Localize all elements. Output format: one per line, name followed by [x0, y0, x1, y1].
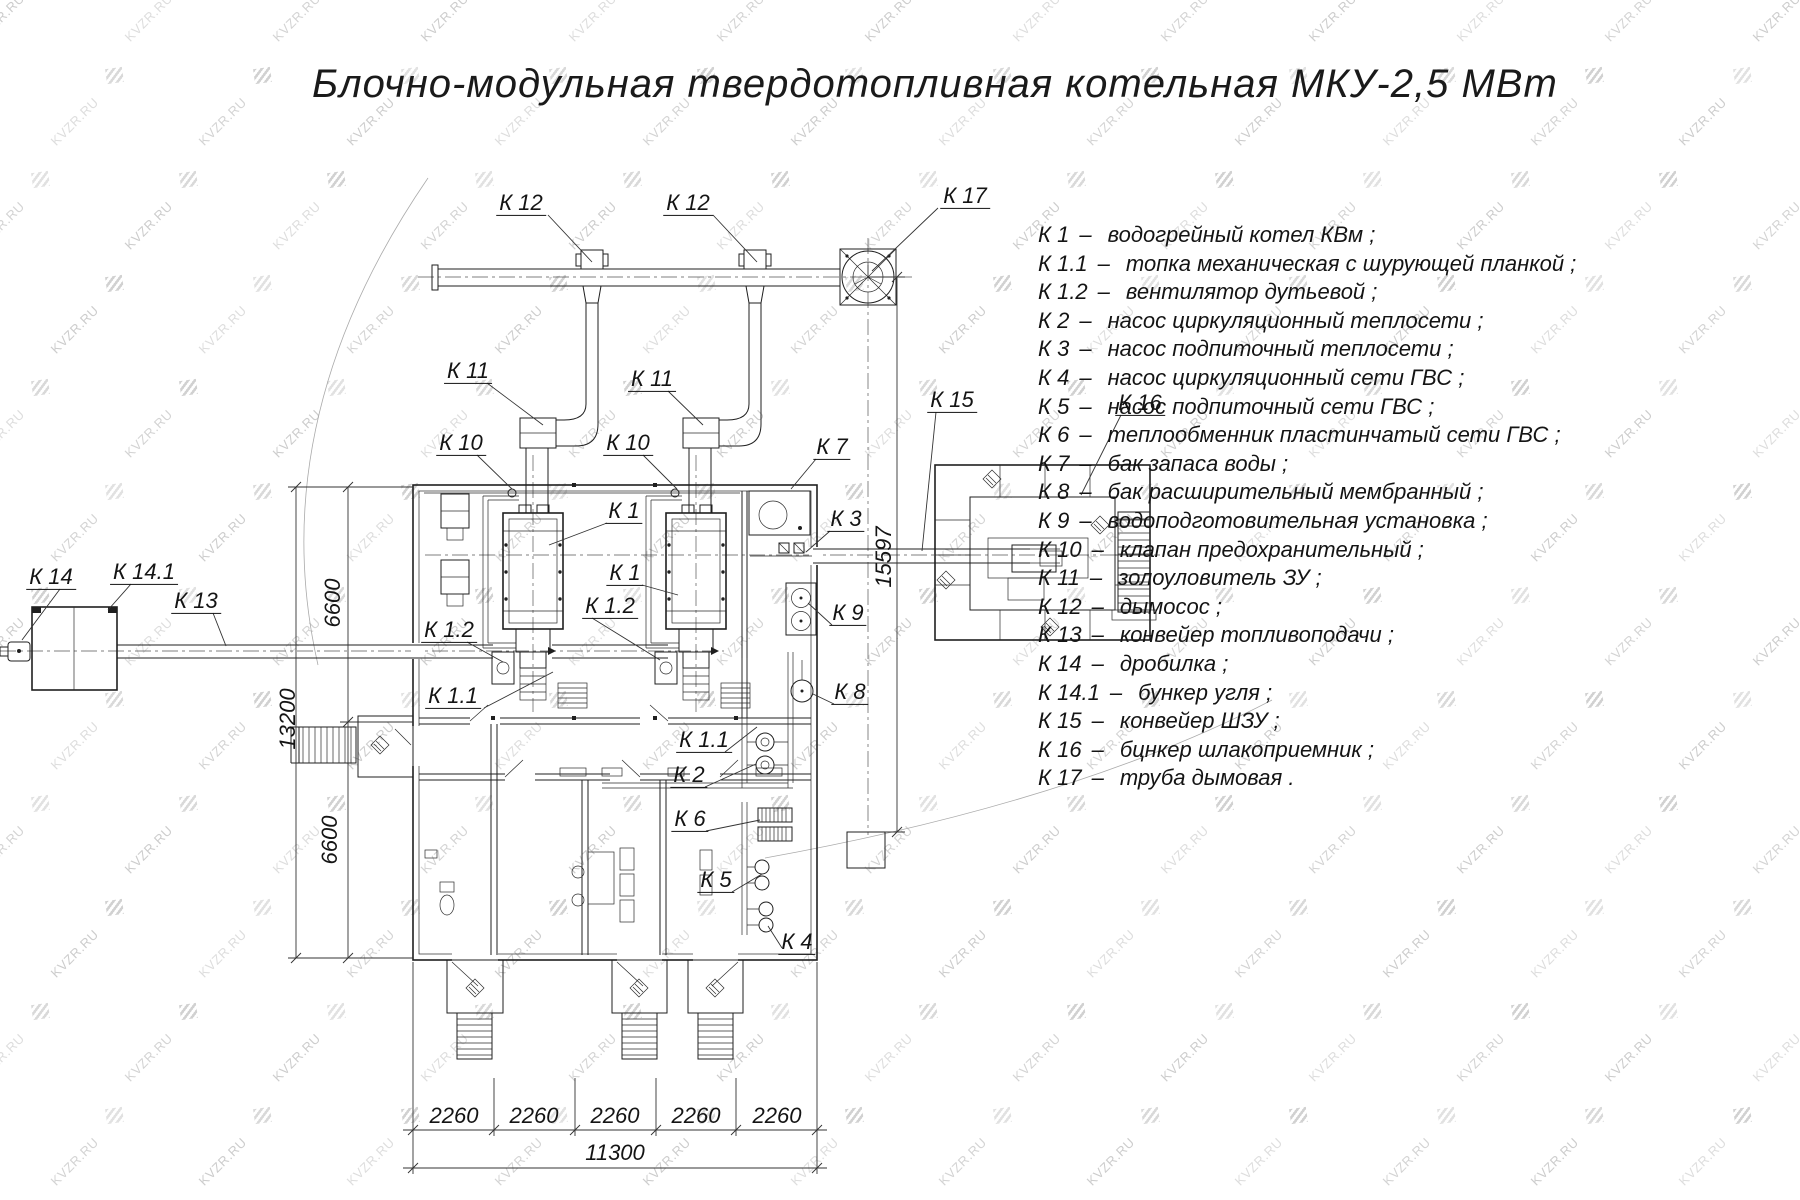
legend-item: К 5–насос подпиточный сети ГВС ; — [1038, 393, 1576, 422]
callout-leaders — [22, 208, 1121, 948]
legend-item-label: дробилка ; — [1120, 650, 1229, 679]
legend-item-label: бак запаса воды ; — [1108, 450, 1289, 479]
callout-label: К 2 — [670, 763, 707, 788]
legend-item-dash: – — [1110, 679, 1122, 708]
callout-label: К 12 — [663, 191, 713, 216]
legend-item-code: К 7 — [1038, 450, 1069, 479]
legend-item-dash: – — [1079, 393, 1091, 422]
legend-item-label: насос циркуляционный сети ГВС ; — [1108, 364, 1465, 393]
dimension-text: 2260 — [672, 1103, 721, 1129]
boiler-k1-left — [483, 496, 587, 708]
legend-item-dash: – — [1098, 278, 1110, 307]
legend-item: К 17–труба дымовая . — [1038, 764, 1576, 793]
dimension-text: 2260 — [591, 1103, 640, 1129]
dimension-text: 2260 — [430, 1103, 479, 1129]
legend-item-code: К 4 — [1038, 364, 1069, 393]
callout-label: К 1.1 — [425, 684, 481, 709]
callout-label: К 7 — [813, 435, 850, 460]
callout-label: К 12 — [496, 191, 546, 216]
left-wall-units — [441, 494, 469, 606]
legend-item: К 11–золоуловитель ЗУ ; — [1038, 564, 1576, 593]
legend-item-code: К 14.1 — [1038, 679, 1100, 708]
legend-item-dash: – — [1079, 335, 1091, 364]
legend-item-label: водоподготовительная установка ; — [1108, 507, 1488, 536]
legend-item-dash: – — [1098, 250, 1110, 279]
legend-item-label: бак расширительный мембранный ; — [1108, 478, 1484, 507]
legend-item-label: конвейер ШЗУ ; — [1120, 707, 1280, 736]
legend: К 1–водогрейный котел КВм ;К 1.1–топка м… — [1038, 221, 1576, 793]
legend-item-label: теплообменник пластинчатый сети ГВС ; — [1108, 421, 1561, 450]
dimension-text: 15597 — [871, 526, 897, 587]
callout-label: К 10 — [603, 431, 653, 456]
boiler-k1-right — [646, 496, 750, 708]
legend-item: К 7–бак запаса воды ; — [1038, 450, 1576, 479]
legend-item-code: К 12 — [1038, 593, 1082, 622]
legend-item: К 16–бцнкер шлакоприемник ; — [1038, 736, 1576, 765]
legend-item-label: золоуловитель ЗУ ; — [1118, 564, 1321, 593]
legend-item-dash: – — [1092, 593, 1104, 622]
legend-item-code: К 13 — [1038, 621, 1082, 650]
callout-label: К 11 — [628, 367, 676, 392]
legend-item: К 14–дробилка ; — [1038, 650, 1576, 679]
left-annex-stairs — [291, 716, 413, 777]
legend-item-label: вентилятор дутьевой ; — [1126, 278, 1377, 307]
legend-item-code: К 10 — [1038, 536, 1082, 565]
legend-item-dash: – — [1090, 564, 1102, 593]
legend-item-label: дымосос ; — [1120, 593, 1222, 622]
callout-label: К 1 — [605, 499, 642, 524]
legend-item-code: К 5 — [1038, 393, 1069, 422]
legend-item-code: К 11 — [1038, 564, 1080, 593]
legend-item-dash: – — [1092, 536, 1104, 565]
legend-item: К 3–насос подпиточный теплосети ; — [1038, 335, 1576, 364]
legend-item-label: клапан предохранительный ; — [1120, 536, 1424, 565]
legend-item-label: насос подпиточный сети ГВС ; — [1108, 393, 1435, 422]
legend-item: К 6–теплообменник пластинчатый сети ГВС … — [1038, 421, 1576, 450]
legend-item-code: К 3 — [1038, 335, 1069, 364]
legend-item-dash: – — [1079, 478, 1091, 507]
callout-label: К 1.2 — [582, 594, 638, 619]
callout-label: К 8 — [831, 680, 868, 705]
callout-label: К 10 — [436, 431, 486, 456]
legend-item: К 8–бак расширительный мембранный ; — [1038, 478, 1576, 507]
legend-item-label: насос циркуляционный теплосети ; — [1108, 307, 1484, 336]
legend-item: К 13–конвейер топливоподачи ; — [1038, 621, 1576, 650]
legend-item: К 10–клапан предохранительный ; — [1038, 536, 1576, 565]
legend-item-code: К 17 — [1038, 764, 1082, 793]
dimension-text: 2260 — [510, 1103, 559, 1129]
dimension-text: 13200 — [275, 688, 301, 749]
legend-item-label: насос подпиточный теплосети ; — [1108, 335, 1454, 364]
legend-item-code: К 8 — [1038, 478, 1069, 507]
entrance-porches — [447, 960, 743, 1059]
callout-label: К 1 — [606, 561, 643, 586]
callout-label: К 14 — [26, 565, 76, 590]
callout-label: К 13 — [171, 589, 221, 614]
fuel-feed-line — [0, 607, 719, 690]
legend-item-label: топка механическая с шурующей планкой ; — [1126, 250, 1576, 279]
legend-item-code: К 15 — [1038, 707, 1082, 736]
callout-label: К 4 — [778, 930, 815, 955]
legend-item-label: бункер угля ; — [1138, 679, 1272, 708]
legend-item-dash: – — [1079, 364, 1091, 393]
legend-item-code: К 1.2 — [1038, 278, 1088, 307]
legend-item-label: конвейер топливоподачи ; — [1120, 621, 1394, 650]
callout-label: К 6 — [671, 807, 708, 832]
legend-item-dash: – — [1079, 421, 1091, 450]
legend-item: К 15–конвейер ШЗУ ; — [1038, 707, 1576, 736]
legend-item-label: бцнкер шлакоприемник ; — [1120, 736, 1374, 765]
legend-item-dash: – — [1079, 507, 1091, 536]
callout-label: К 3 — [827, 507, 864, 532]
legend-item-code: К 16 — [1038, 736, 1082, 765]
callout-label: К 15 — [927, 388, 977, 413]
legend-item-label: водогрейный котел КВм ; — [1108, 221, 1376, 250]
callout-label: К 1.2 — [421, 618, 477, 643]
legend-item: К 1.1–топка механическая с шурующей план… — [1038, 250, 1576, 279]
legend-item-dash: – — [1092, 764, 1104, 793]
dimension-text: 11300 — [585, 1140, 645, 1166]
dimension-text: 6600 — [320, 579, 346, 628]
legend-item: К 9–водоподготовительная установка ; — [1038, 507, 1576, 536]
legend-item: К 1–водогрейный котел КВм ; — [1038, 221, 1576, 250]
callout-label: К 1.1 — [676, 728, 732, 753]
dimension-lines — [288, 272, 905, 1174]
legend-item: К 2–насос циркуляционный теплосети ; — [1038, 307, 1576, 336]
legend-item-dash: – — [1079, 307, 1091, 336]
legend-item-code: К 6 — [1038, 421, 1069, 450]
room-furniture — [425, 768, 782, 922]
legend-item: К 4–насос циркуляционный сети ГВС ; — [1038, 364, 1576, 393]
legend-item-dash: – — [1079, 450, 1091, 479]
legend-item-dash: – — [1092, 736, 1104, 765]
callout-label: К 14.1 — [110, 560, 178, 585]
dimension-text: 2260 — [753, 1103, 802, 1129]
callout-label: К 11 — [444, 359, 492, 384]
legend-item: К 12–дымосос ; — [1038, 593, 1576, 622]
legend-item-dash: – — [1092, 650, 1104, 679]
callout-label: К 9 — [829, 601, 866, 626]
legend-item-code: К 1.1 — [1038, 250, 1088, 279]
legend-item-dash: – — [1092, 707, 1104, 736]
legend-item-dash: – — [1092, 621, 1104, 650]
legend-item-dash: – — [1079, 221, 1091, 250]
callout-label: К 5 — [697, 868, 734, 893]
centerlines — [0, 238, 1160, 835]
legend-item-label: труба дымовая . — [1120, 764, 1295, 793]
drawing-sheet: KVZR.RUKVZR.RUKVZR.RUKVZR.RUKVZR.RUKVZR.… — [0, 0, 1800, 1200]
legend-item: К 1.2–вентилятор дутьевой ; — [1038, 278, 1576, 307]
legend-item-code: К 9 — [1038, 507, 1069, 536]
legend-item-code: К 2 — [1038, 307, 1069, 336]
legend-item-code: К 1 — [1038, 221, 1069, 250]
callout-label: К 17 — [940, 184, 990, 209]
legend-item-code: К 14 — [1038, 650, 1082, 679]
legend-item: К 14.1–бункер угля ; — [1038, 679, 1576, 708]
drawing-title: Блочно-модульная твердотопливная котельн… — [312, 62, 1437, 107]
dimension-text: 6600 — [317, 816, 343, 865]
